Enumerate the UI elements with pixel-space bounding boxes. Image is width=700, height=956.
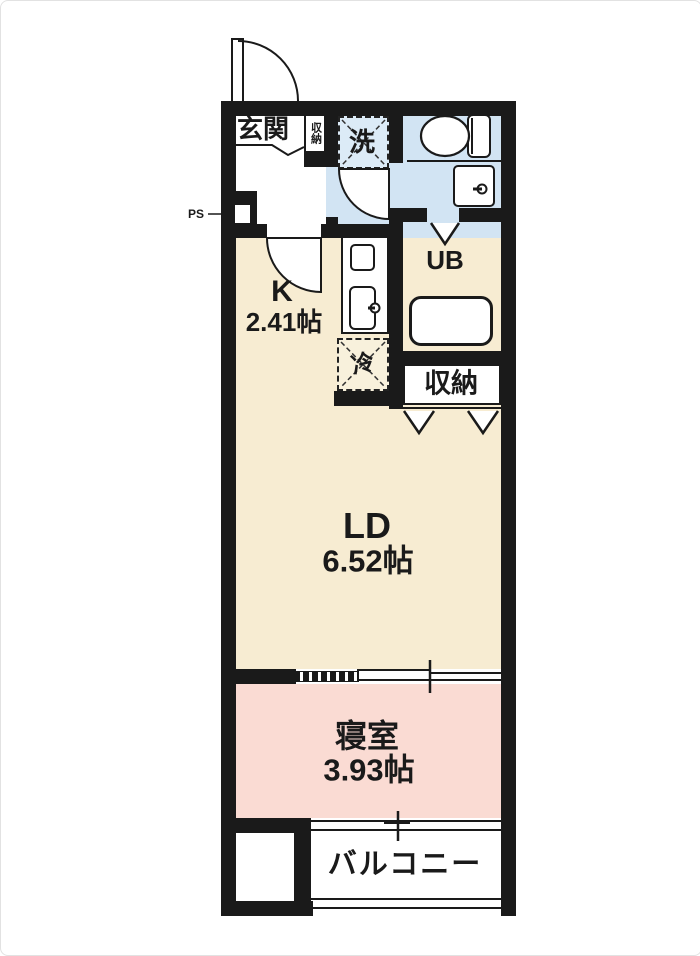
sliding-door-rail bbox=[429, 672, 501, 681]
bedroom-size-label: 3.93帖 bbox=[323, 755, 414, 786]
wall-ub-left bbox=[389, 222, 403, 409]
genkan-label: 玄関 bbox=[237, 116, 289, 142]
balcony-window bbox=[309, 820, 501, 831]
bathtub-icon bbox=[409, 296, 493, 346]
closet-label: 収納 bbox=[424, 371, 478, 398]
wall-under-tub bbox=[389, 351, 516, 364]
unit-bath-label: UB bbox=[426, 247, 464, 273]
balcony-railing bbox=[311, 898, 501, 909]
wall-washroom-ub-a bbox=[389, 208, 427, 222]
living-dining-label: LD bbox=[343, 508, 391, 544]
entrance-door-arc bbox=[238, 41, 298, 101]
wall-left bbox=[221, 101, 236, 916]
toilet-tank-icon bbox=[467, 114, 491, 158]
bathroom-sink-icon bbox=[453, 165, 495, 207]
stove-icon bbox=[350, 244, 375, 271]
balcony-label: バルコニー bbox=[328, 851, 482, 880]
wall-washroom-ub-b bbox=[459, 208, 516, 222]
genkan-step-line bbox=[235, 145, 304, 155]
entrance-door-leaf bbox=[232, 39, 243, 102]
sliding-door-leaf bbox=[357, 669, 431, 681]
kitchen-size-label: 2.41帖 bbox=[246, 309, 323, 335]
sliding-door-track bbox=[293, 671, 359, 682]
wall-laundry-toilet-stub bbox=[389, 116, 403, 163]
kitchen-label: K bbox=[271, 277, 293, 307]
kitchen-sink-icon bbox=[349, 286, 376, 330]
laundry-label: 洗 bbox=[349, 129, 375, 155]
ps-label: PS bbox=[188, 208, 204, 220]
wall-balcony-left bbox=[294, 818, 311, 916]
entrance-storage-label: 収納 bbox=[310, 122, 321, 144]
wall-ld-bedroom bbox=[221, 669, 296, 684]
wall-fridge-stub bbox=[334, 391, 403, 406]
wall-right bbox=[501, 101, 516, 916]
bedroom-label: 寝室 bbox=[335, 720, 399, 752]
wall-hall-kitchen-b bbox=[321, 224, 391, 238]
floor-plan: 玄関 収納 洗 PS K 2.41帖 UB 冷 収納 LD 6.52帖 寝室 3… bbox=[0, 0, 700, 956]
living-dining-size-label: 6.52帖 bbox=[322, 546, 413, 577]
wall-hall-washroom-upper bbox=[326, 116, 338, 167]
ps-niche bbox=[235, 205, 250, 223]
